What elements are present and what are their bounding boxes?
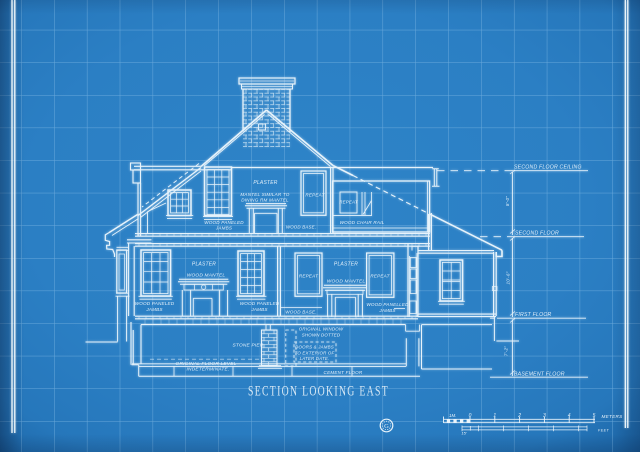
svg-text:1: 1 [493,413,496,419]
svg-text:PLASTER: PLASTER [253,180,277,186]
svg-text:WOOD PANELED: WOOD PANELED [240,301,280,306]
svg-text:CEMENT FLOOR: CEMENT FLOOR [324,370,363,375]
svg-text:ORIGINAL WINDOW: ORIGINAL WINDOW [299,327,344,332]
svg-text:7'-2": 7'-2" [504,346,509,356]
svg-text:REPEAT: REPEAT [370,274,390,279]
svg-text:4: 4 [568,413,571,419]
svg-text:WOOD BASE.: WOOD BASE. [285,310,317,315]
svg-text:0: 0 [469,413,472,419]
svg-text:2: 2 [517,413,521,419]
svg-text:8'-0": 8'-0" [505,196,510,206]
svg-text:WOOD BASE.: WOOD BASE. [286,225,316,230]
svg-text:JAMBS: JAMBS [250,307,268,312]
svg-text:15': 15' [461,431,466,436]
svg-text:TO EXTERIOR OF: TO EXTERIOR OF [295,351,335,356]
svg-text:LATER DATE.: LATER DATE. [300,356,330,361]
svg-text:WOOD PANELED: WOOD PANELED [204,220,244,225]
svg-text:PLASTER: PLASTER [192,262,216,268]
svg-text:WOOD PANELLED: WOOD PANELLED [366,302,409,307]
svg-text:SECTION LOOKING EAST: SECTION LOOKING EAST [248,384,389,400]
svg-text:3: 3 [543,413,546,419]
svg-text:JAMBS: JAMBS [378,308,396,313]
svg-text:JAMBS: JAMBS [215,226,233,231]
svg-text:INDETERMINATE.: INDETERMINATE. [187,367,230,373]
svg-text:5: 5 [593,413,596,419]
svg-text:G: G [384,423,389,430]
svg-text:SECOND FLOOR CEILING: SECOND FLOOR CEILING [514,165,582,171]
svg-text:WOOD PANELED: WOOD PANELED [135,301,175,306]
svg-text:FIRST FLOOR: FIRST FLOOR [515,312,552,318]
svg-text:SHOWN DOTTED: SHOWN DOTTED [302,333,341,338]
svg-text:METERS: METERS [602,414,624,419]
svg-text:ORIGINAL FLOOR LEVEL: ORIGINAL FLOOR LEVEL [176,361,237,367]
svg-text:JAMBS: JAMBS [145,307,163,312]
svg-text:WOOD MANTEL: WOOD MANTEL [327,279,366,285]
svg-text:SECOND FLOOR: SECOND FLOOR [515,231,559,237]
svg-text:STONE PIER: STONE PIER [233,343,264,349]
svg-text:PLASTER: PLASTER [334,262,358,268]
svg-text:1M.: 1M. [449,413,456,418]
svg-text:DINING RM MANTEL: DINING RM MANTEL [241,197,289,202]
svg-text:DOORS & JAMBS: DOORS & JAMBS [295,345,334,350]
svg-text:MANTEL SIMILAR TO: MANTEL SIMILAR TO [240,192,289,197]
svg-text:FEET: FEET [598,429,609,433]
svg-text:REPEAT: REPEAT [305,193,325,198]
svg-text:10'-6": 10'-6" [506,271,511,284]
svg-text:WOOD MANTEL: WOOD MANTEL [187,273,226,279]
svg-text:BASEMENT FLOOR: BASEMENT FLOOR [514,372,565,378]
svg-text:REPEAT: REPEAT [299,274,319,279]
svg-text:WOOD CHAIR RAIL: WOOD CHAIR RAIL [340,220,385,225]
svg-text:REPEAT: REPEAT [339,200,358,205]
